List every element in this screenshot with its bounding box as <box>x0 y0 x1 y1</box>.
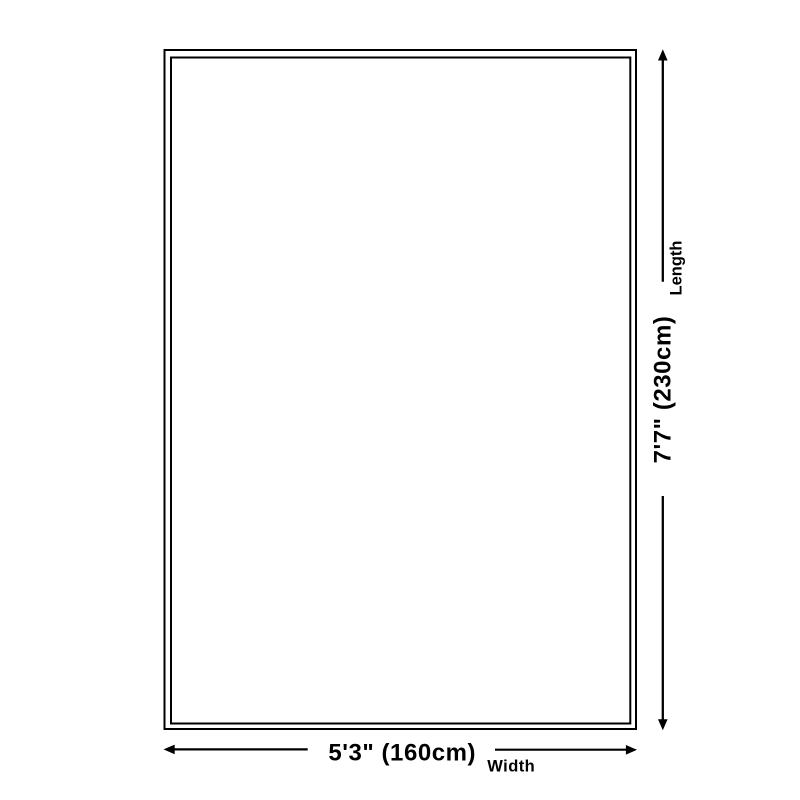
svg-text:Length: Length <box>668 241 686 296</box>
svg-text:Width: Width <box>487 758 535 776</box>
svg-text:5'3" (160cm): 5'3" (160cm) <box>328 739 476 766</box>
svg-text:7'7" (230cm): 7'7" (230cm) <box>649 316 676 464</box>
